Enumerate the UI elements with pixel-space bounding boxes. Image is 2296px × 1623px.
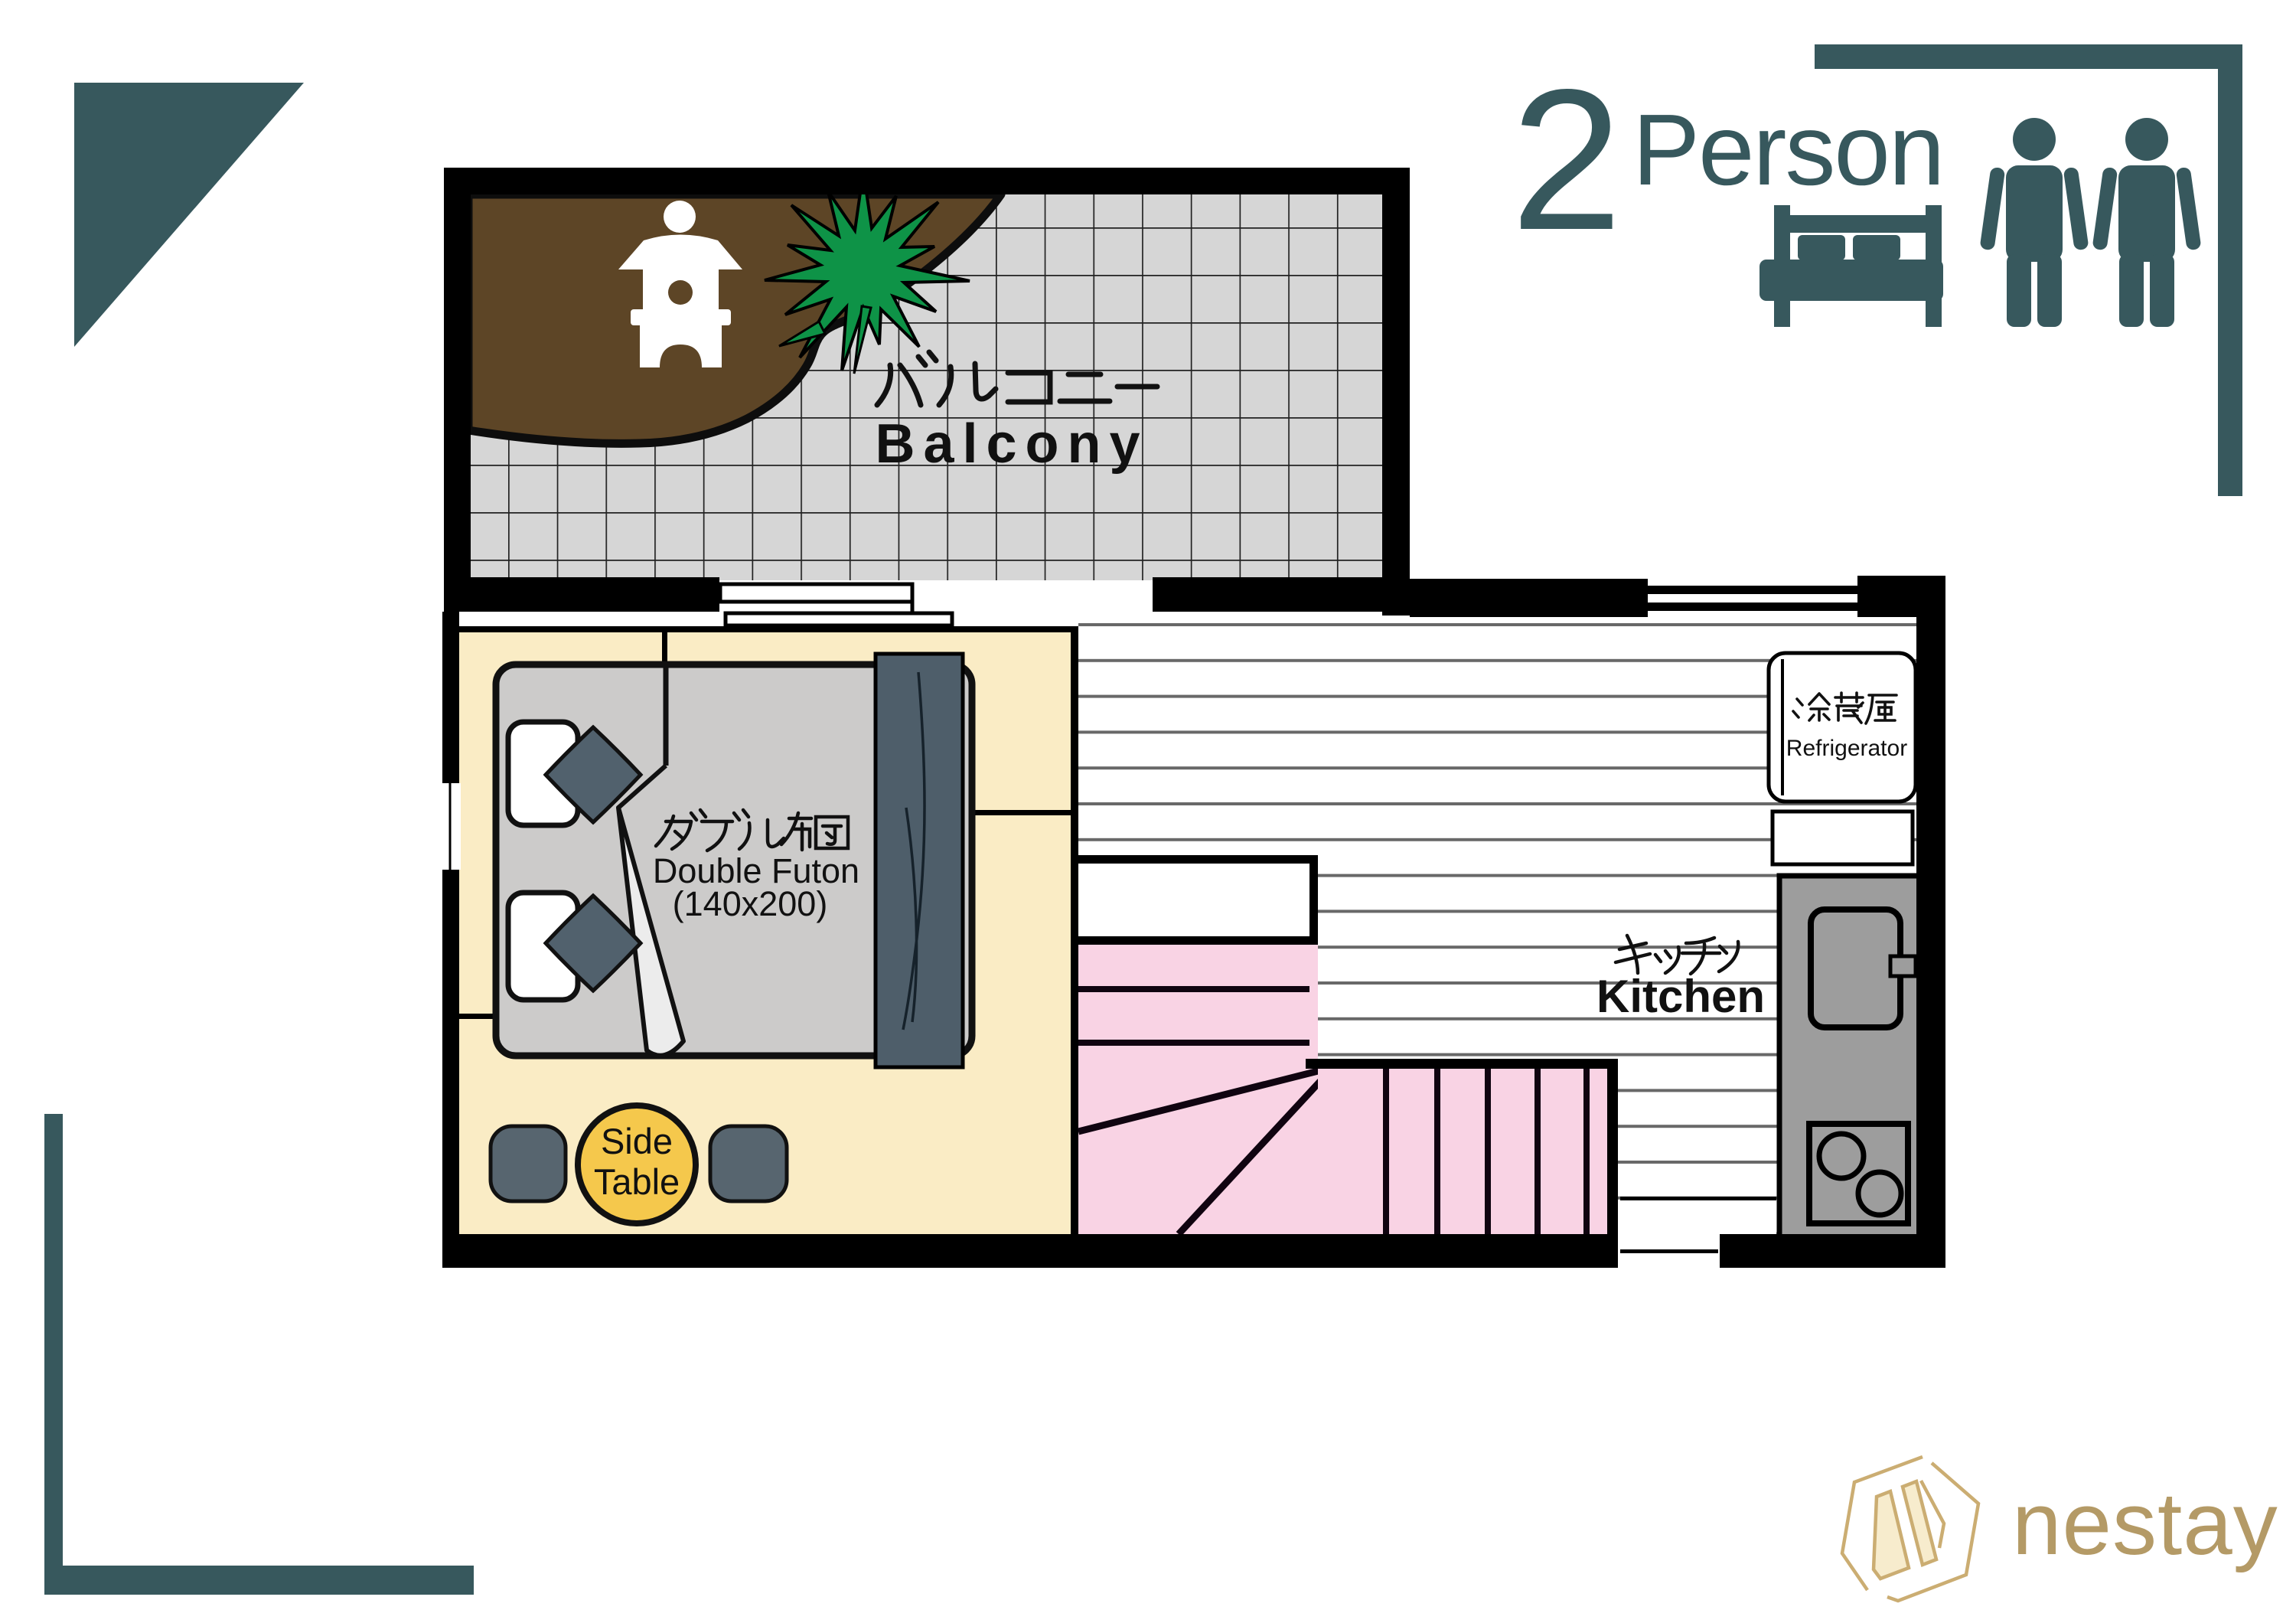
svg-text:Kitchen: Kitchen xyxy=(1596,971,1765,1022)
svg-text:Side: Side xyxy=(601,1121,673,1161)
svg-text:Refrigerator: Refrigerator xyxy=(1786,736,1907,761)
svg-text:(140x200): (140x200) xyxy=(673,884,828,923)
svg-text:2: 2 xyxy=(1511,47,1623,272)
svg-text:Balcony: Balcony xyxy=(875,413,1148,475)
svg-text:nestay: nestay xyxy=(2012,1474,2278,1573)
svg-text:Table: Table xyxy=(594,1161,680,1202)
svg-text:Person: Person xyxy=(1632,93,1943,206)
